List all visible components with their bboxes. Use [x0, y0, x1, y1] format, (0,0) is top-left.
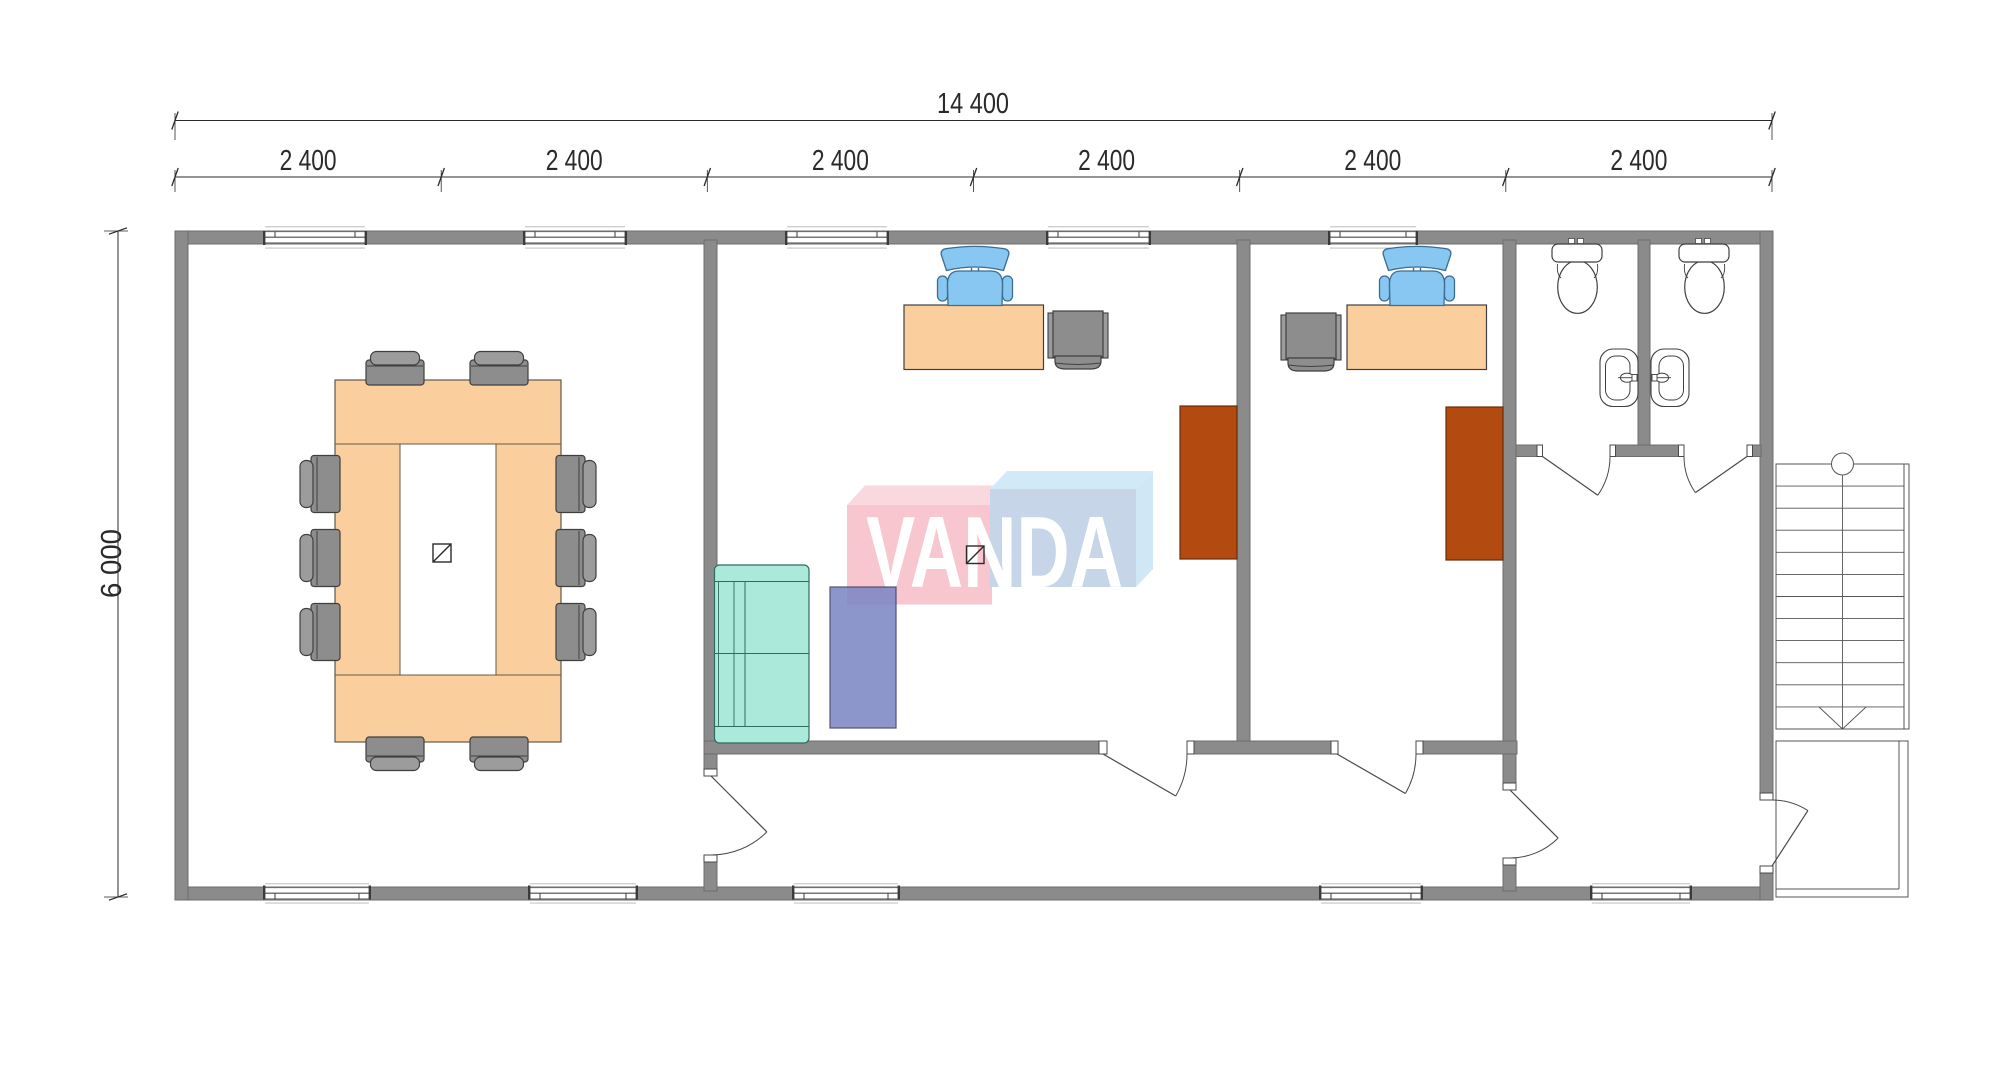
svg-text:2 400: 2 400: [280, 145, 337, 177]
svg-text:2 400: 2 400: [1078, 145, 1135, 177]
svg-text:6 000: 6 000: [96, 529, 128, 598]
svg-text:2 400: 2 400: [546, 145, 603, 177]
svg-text:14 400: 14 400: [937, 88, 1009, 120]
svg-text:2 400: 2 400: [1344, 145, 1401, 177]
svg-text:2 400: 2 400: [1610, 145, 1667, 177]
svg-text:2 400: 2 400: [812, 145, 869, 177]
svg-text:VANDA: VANDA: [866, 497, 1123, 609]
